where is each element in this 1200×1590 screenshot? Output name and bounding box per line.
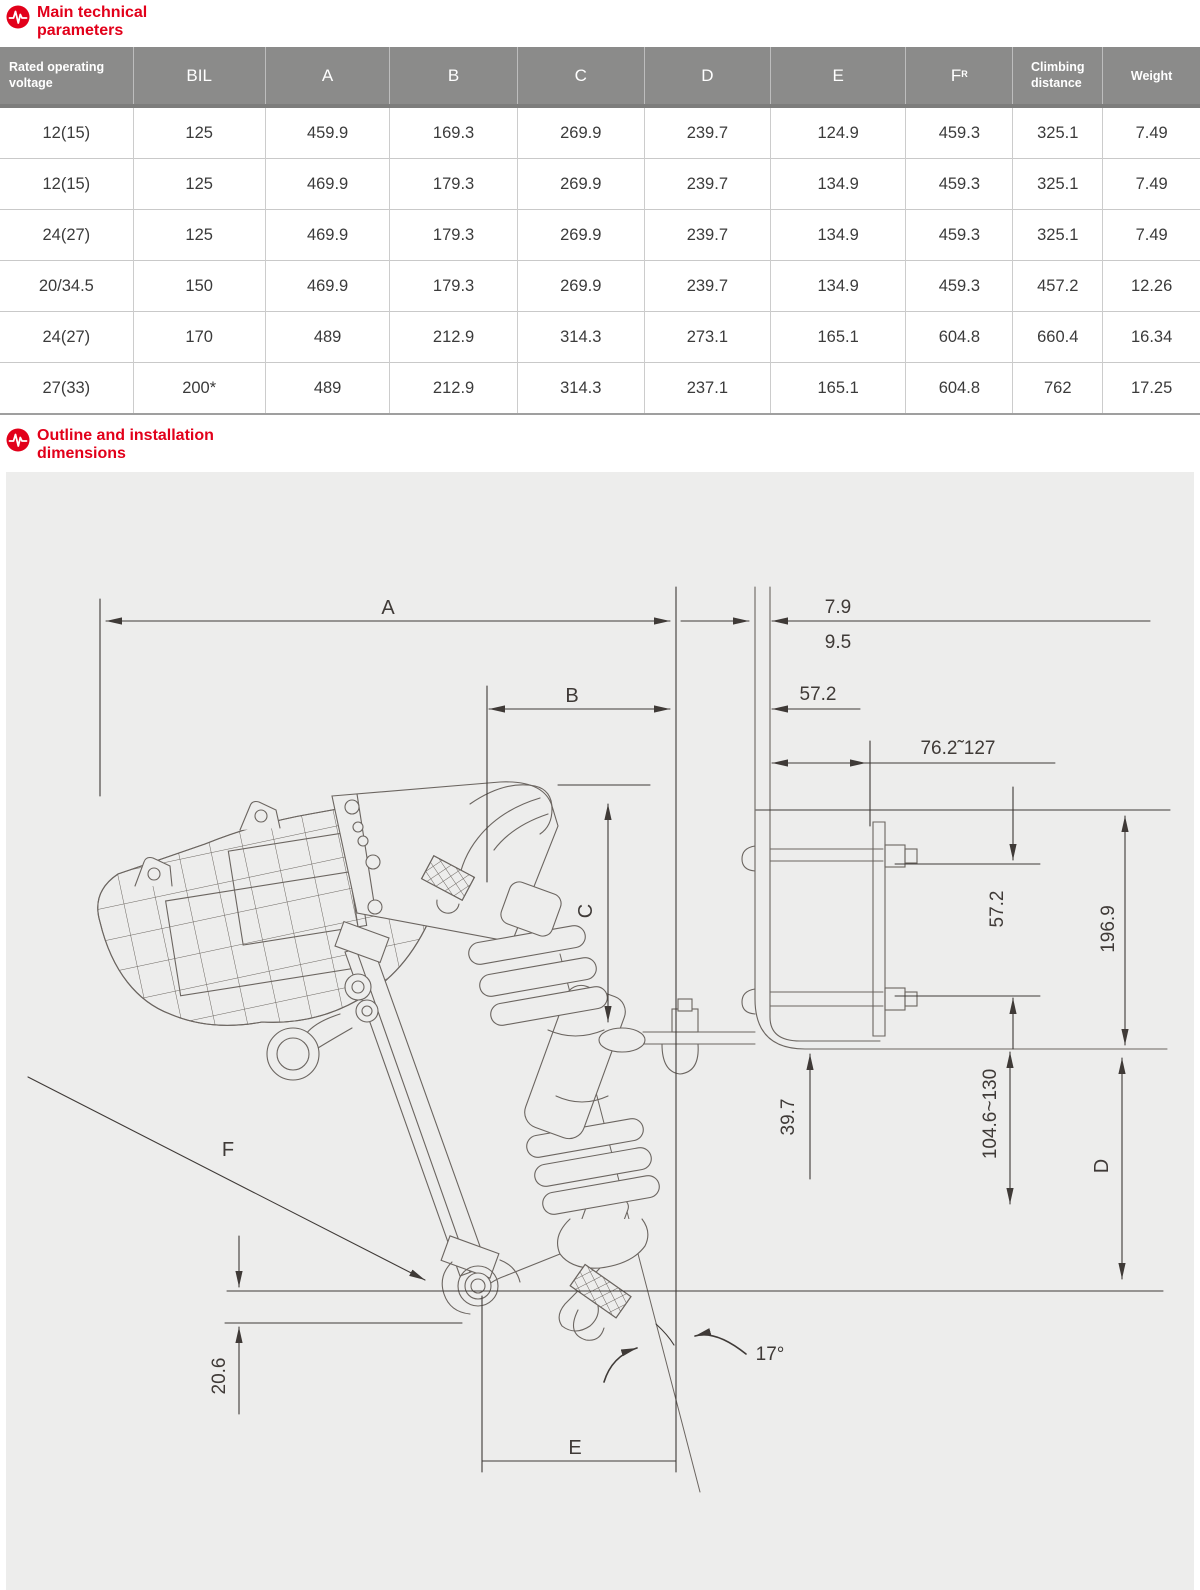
table-cell: 469.9: [265, 159, 390, 210]
table-cell: 7.49: [1103, 106, 1200, 159]
table-cell: 762: [1013, 363, 1103, 415]
table-cell: 150: [133, 261, 265, 312]
column-header: Climbingdistance: [1013, 47, 1103, 106]
outline-drawing-panel: A B 7.9 9.5 57.2 76.2˜127 C 57.2 196.9 3…: [6, 472, 1194, 1590]
column-header: Rated operatingvoltage: [0, 47, 133, 106]
section-title: Outline and installation dimensions: [37, 427, 214, 462]
table-cell: 27(33): [0, 363, 133, 415]
table-cell: 325.1: [1013, 159, 1103, 210]
section-title: Main technical parameters: [37, 4, 147, 39]
table-row: 24(27)170489212.9314.3273.1165.1604.8660…: [0, 312, 1200, 363]
dim-label-104-6-130: 104.6~130: [980, 1069, 1001, 1159]
pulse-icon: [6, 5, 30, 34]
column-header: Weight: [1103, 47, 1200, 106]
mounting-channel: [755, 587, 1167, 1049]
fuse-cutout-drawing: [98, 587, 1167, 1340]
section-main-technical-parameters: Main technical parameters: [6, 4, 1200, 39]
table-cell: 125: [133, 159, 265, 210]
table-cell: 489: [265, 363, 390, 415]
table-cell: 459.3: [906, 210, 1013, 261]
table-cell: 604.8: [906, 312, 1013, 363]
table-cell: 314.3: [517, 312, 644, 363]
table-cell: 179.3: [390, 210, 517, 261]
column-header: C: [517, 47, 644, 106]
table-cell: 269.9: [517, 261, 644, 312]
table-cell: 200*: [133, 363, 265, 415]
table-cell: 469.9: [265, 261, 390, 312]
section-outline-installation: Outline and installation dimensions: [6, 427, 1200, 462]
dim-label-20-6: 20.6: [209, 1358, 230, 1395]
outline-diagram: A B 7.9 9.5 57.2 76.2˜127 C 57.2 196.9 3…: [6, 472, 1194, 1590]
table-cell: 24(27): [0, 210, 133, 261]
column-header: BIL: [133, 47, 265, 106]
mounting-bracket-bolts: [742, 822, 917, 1036]
table-cell: 604.8: [906, 363, 1013, 415]
table-cell: 459.3: [906, 261, 1013, 312]
table-cell: 125: [133, 210, 265, 261]
table-cell: 170: [133, 312, 265, 363]
dim-label-E: E: [568, 1437, 581, 1459]
table-cell: 239.7: [644, 106, 770, 159]
column-header: A: [265, 47, 390, 106]
table-row: 12(15)125459.9169.3269.9239.7124.9459.33…: [0, 106, 1200, 159]
column-header: E: [770, 47, 906, 106]
table-cell: 469.9: [265, 210, 390, 261]
table-cell: 269.9: [517, 106, 644, 159]
table-cell: 239.7: [644, 261, 770, 312]
table-cell: 12(15): [0, 106, 133, 159]
table-cell: 134.9: [770, 210, 906, 261]
table-cell: 124.9: [770, 106, 906, 159]
table-cell: 134.9: [770, 159, 906, 210]
table-cell: 179.3: [390, 159, 517, 210]
table-cell: 212.9: [390, 312, 517, 363]
dim-label-C: C: [575, 904, 597, 918]
column-header: D: [644, 47, 770, 106]
table-cell: 273.1: [644, 312, 770, 363]
table-cell: 457.2: [1013, 261, 1103, 312]
table-cell: 489: [265, 312, 390, 363]
dim-label-B: B: [565, 685, 578, 707]
dim-label-17deg: 17°: [756, 1344, 785, 1365]
table-cell: 16.34: [1103, 312, 1200, 363]
table-cell: 169.3: [390, 106, 517, 159]
table-cell: 325.1: [1013, 210, 1103, 261]
dim-label-57-2-top: 57.2: [800, 684, 837, 705]
table-cell: 12.26: [1103, 261, 1200, 312]
table-cell: 269.9: [517, 159, 644, 210]
table-cell: 269.9: [517, 210, 644, 261]
dim-label-39-7: 39.7: [778, 1099, 799, 1136]
table-cell: 325.1: [1013, 106, 1103, 159]
table-cell: 212.9: [390, 363, 517, 415]
dim-label-7-9: 7.9: [825, 597, 851, 618]
table-cell: 17.25: [1103, 363, 1200, 415]
table-cell: 660.4: [1013, 312, 1103, 363]
dim-label-196-9: 196.9: [1098, 906, 1119, 954]
table-cell: 459.3: [906, 106, 1013, 159]
table-row: 12(15)125469.9179.3269.9239.7134.9459.33…: [0, 159, 1200, 210]
column-header: FR: [906, 47, 1013, 106]
dim-label-F: F: [222, 1139, 234, 1161]
table-cell: 125: [133, 106, 265, 159]
table-cell: 165.1: [770, 312, 906, 363]
table-row: 24(27)125469.9179.3269.9239.7134.9459.33…: [0, 210, 1200, 261]
table-cell: 12(15): [0, 159, 133, 210]
table-cell: 239.7: [644, 210, 770, 261]
table-cell: 459.3: [906, 159, 1013, 210]
dimension-labels: A B 7.9 9.5 57.2 76.2˜127 C 57.2 196.9 3…: [209, 597, 1119, 1459]
table-cell: 20/34.5: [0, 261, 133, 312]
parameters-table: Rated operatingvoltageBILABCDEFRClimbing…: [0, 47, 1200, 415]
dim-label-76-2-127: 76.2˜127: [920, 738, 995, 759]
pulse-icon: [6, 428, 30, 457]
table-cell: 179.3: [390, 261, 517, 312]
table-cell: 237.1: [644, 363, 770, 415]
table-row: 20/34.5150469.9179.3269.9239.7134.9459.3…: [0, 261, 1200, 312]
table-cell: 7.49: [1103, 159, 1200, 210]
table-cell: 24(27): [0, 312, 133, 363]
dim-label-A: A: [381, 597, 395, 619]
dim-label-57-2-bolts: 57.2: [987, 891, 1008, 928]
table-cell: 239.7: [644, 159, 770, 210]
dim-label-9-5: 9.5: [825, 632, 851, 653]
dim-label-D: D: [1091, 1159, 1113, 1173]
table-cell: 459.9: [265, 106, 390, 159]
table-cell: 134.9: [770, 261, 906, 312]
column-header: B: [390, 47, 517, 106]
table-row: 27(33)200*489212.9314.3237.1165.1604.876…: [0, 363, 1200, 415]
table-cell: 7.49: [1103, 210, 1200, 261]
table-cell: 165.1: [770, 363, 906, 415]
table-cell: 314.3: [517, 363, 644, 415]
